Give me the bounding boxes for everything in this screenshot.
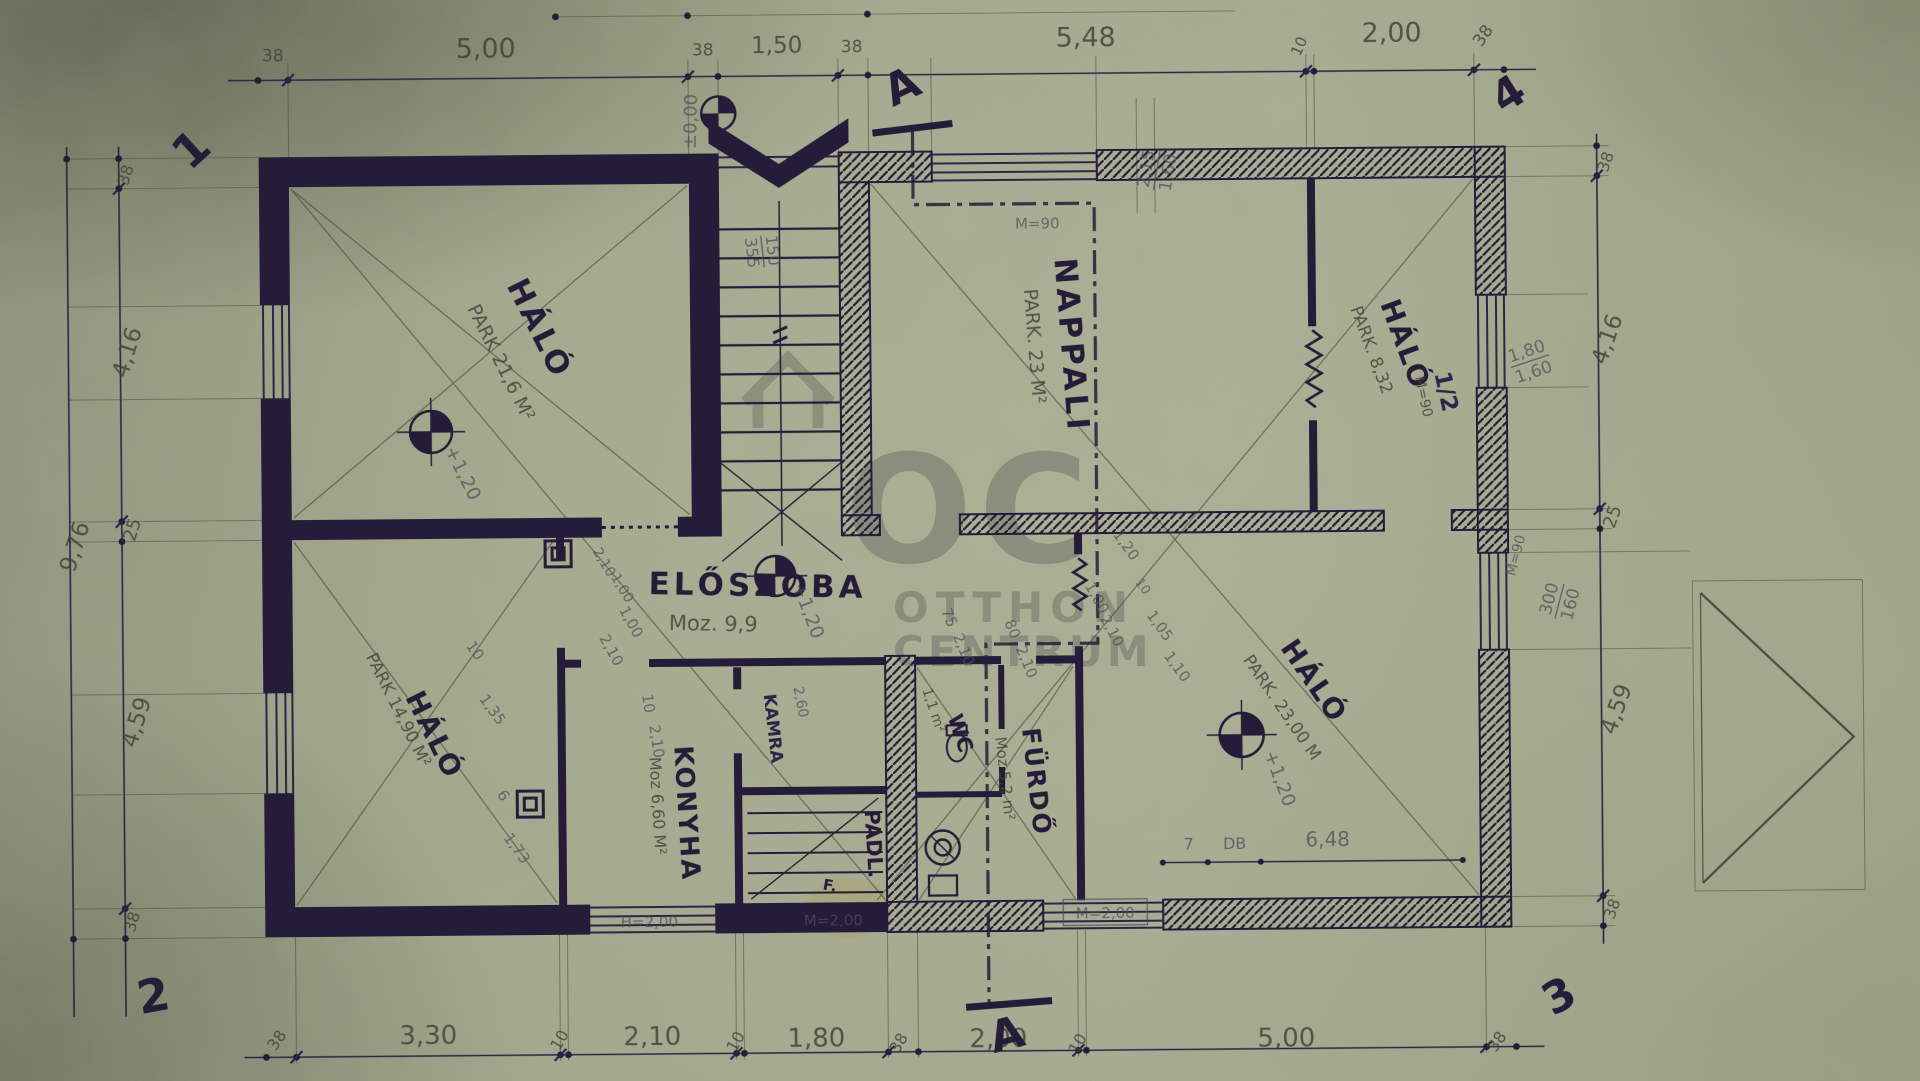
- mark-648: 6,48: [1305, 827, 1350, 851]
- window-sill-nappali: M=90: [1015, 214, 1060, 232]
- threshold-dotted-line: [602, 527, 678, 528]
- room-note-pad-f: F.: [822, 876, 839, 896]
- room-area-eloszoba: Moz. 9,9: [669, 611, 758, 637]
- dim-label: 3,30: [399, 1021, 457, 1052]
- mark-m200a: M=2,00: [804, 911, 863, 930]
- level-entry: ±0,00: [680, 94, 702, 150]
- mark-h200: H=2,00: [621, 913, 678, 931]
- dim-small: 10: [638, 693, 659, 715]
- dim-label: 5,48: [1055, 22, 1115, 54]
- stair-going: 355: [741, 237, 763, 270]
- dim-label: 1,50: [751, 33, 802, 59]
- mark-count7: 7: [1183, 834, 1193, 853]
- mark-db: DB: [1223, 834, 1246, 853]
- dim-label: 5,00: [1257, 1023, 1315, 1054]
- stair-riser: 150: [762, 234, 784, 267]
- watermark-logo: OC: [845, 424, 1095, 598]
- floor-plan-photo: OC OTTHON CENTRUM: [0, 0, 1920, 1081]
- dim-label: 38: [692, 40, 714, 60]
- dim-label: 38: [262, 46, 284, 66]
- dim-label: 38: [841, 37, 863, 57]
- room-label-pad: PADL.: [860, 809, 888, 879]
- stair-size-label: 150 355: [741, 233, 784, 269]
- mark-m200b: M=2,00: [1076, 904, 1135, 923]
- dim-label: 2,10: [623, 1022, 681, 1053]
- room-label-eloszoba: ELŐSZOBA: [648, 565, 867, 606]
- floor-plan-drawing: OC OTTHON CENTRUM: [0, 0, 1920, 1081]
- dim-label: 2,00: [1361, 17, 1421, 49]
- dim-label: 5,00: [456, 33, 516, 65]
- dim-label: 1,80: [787, 1023, 845, 1054]
